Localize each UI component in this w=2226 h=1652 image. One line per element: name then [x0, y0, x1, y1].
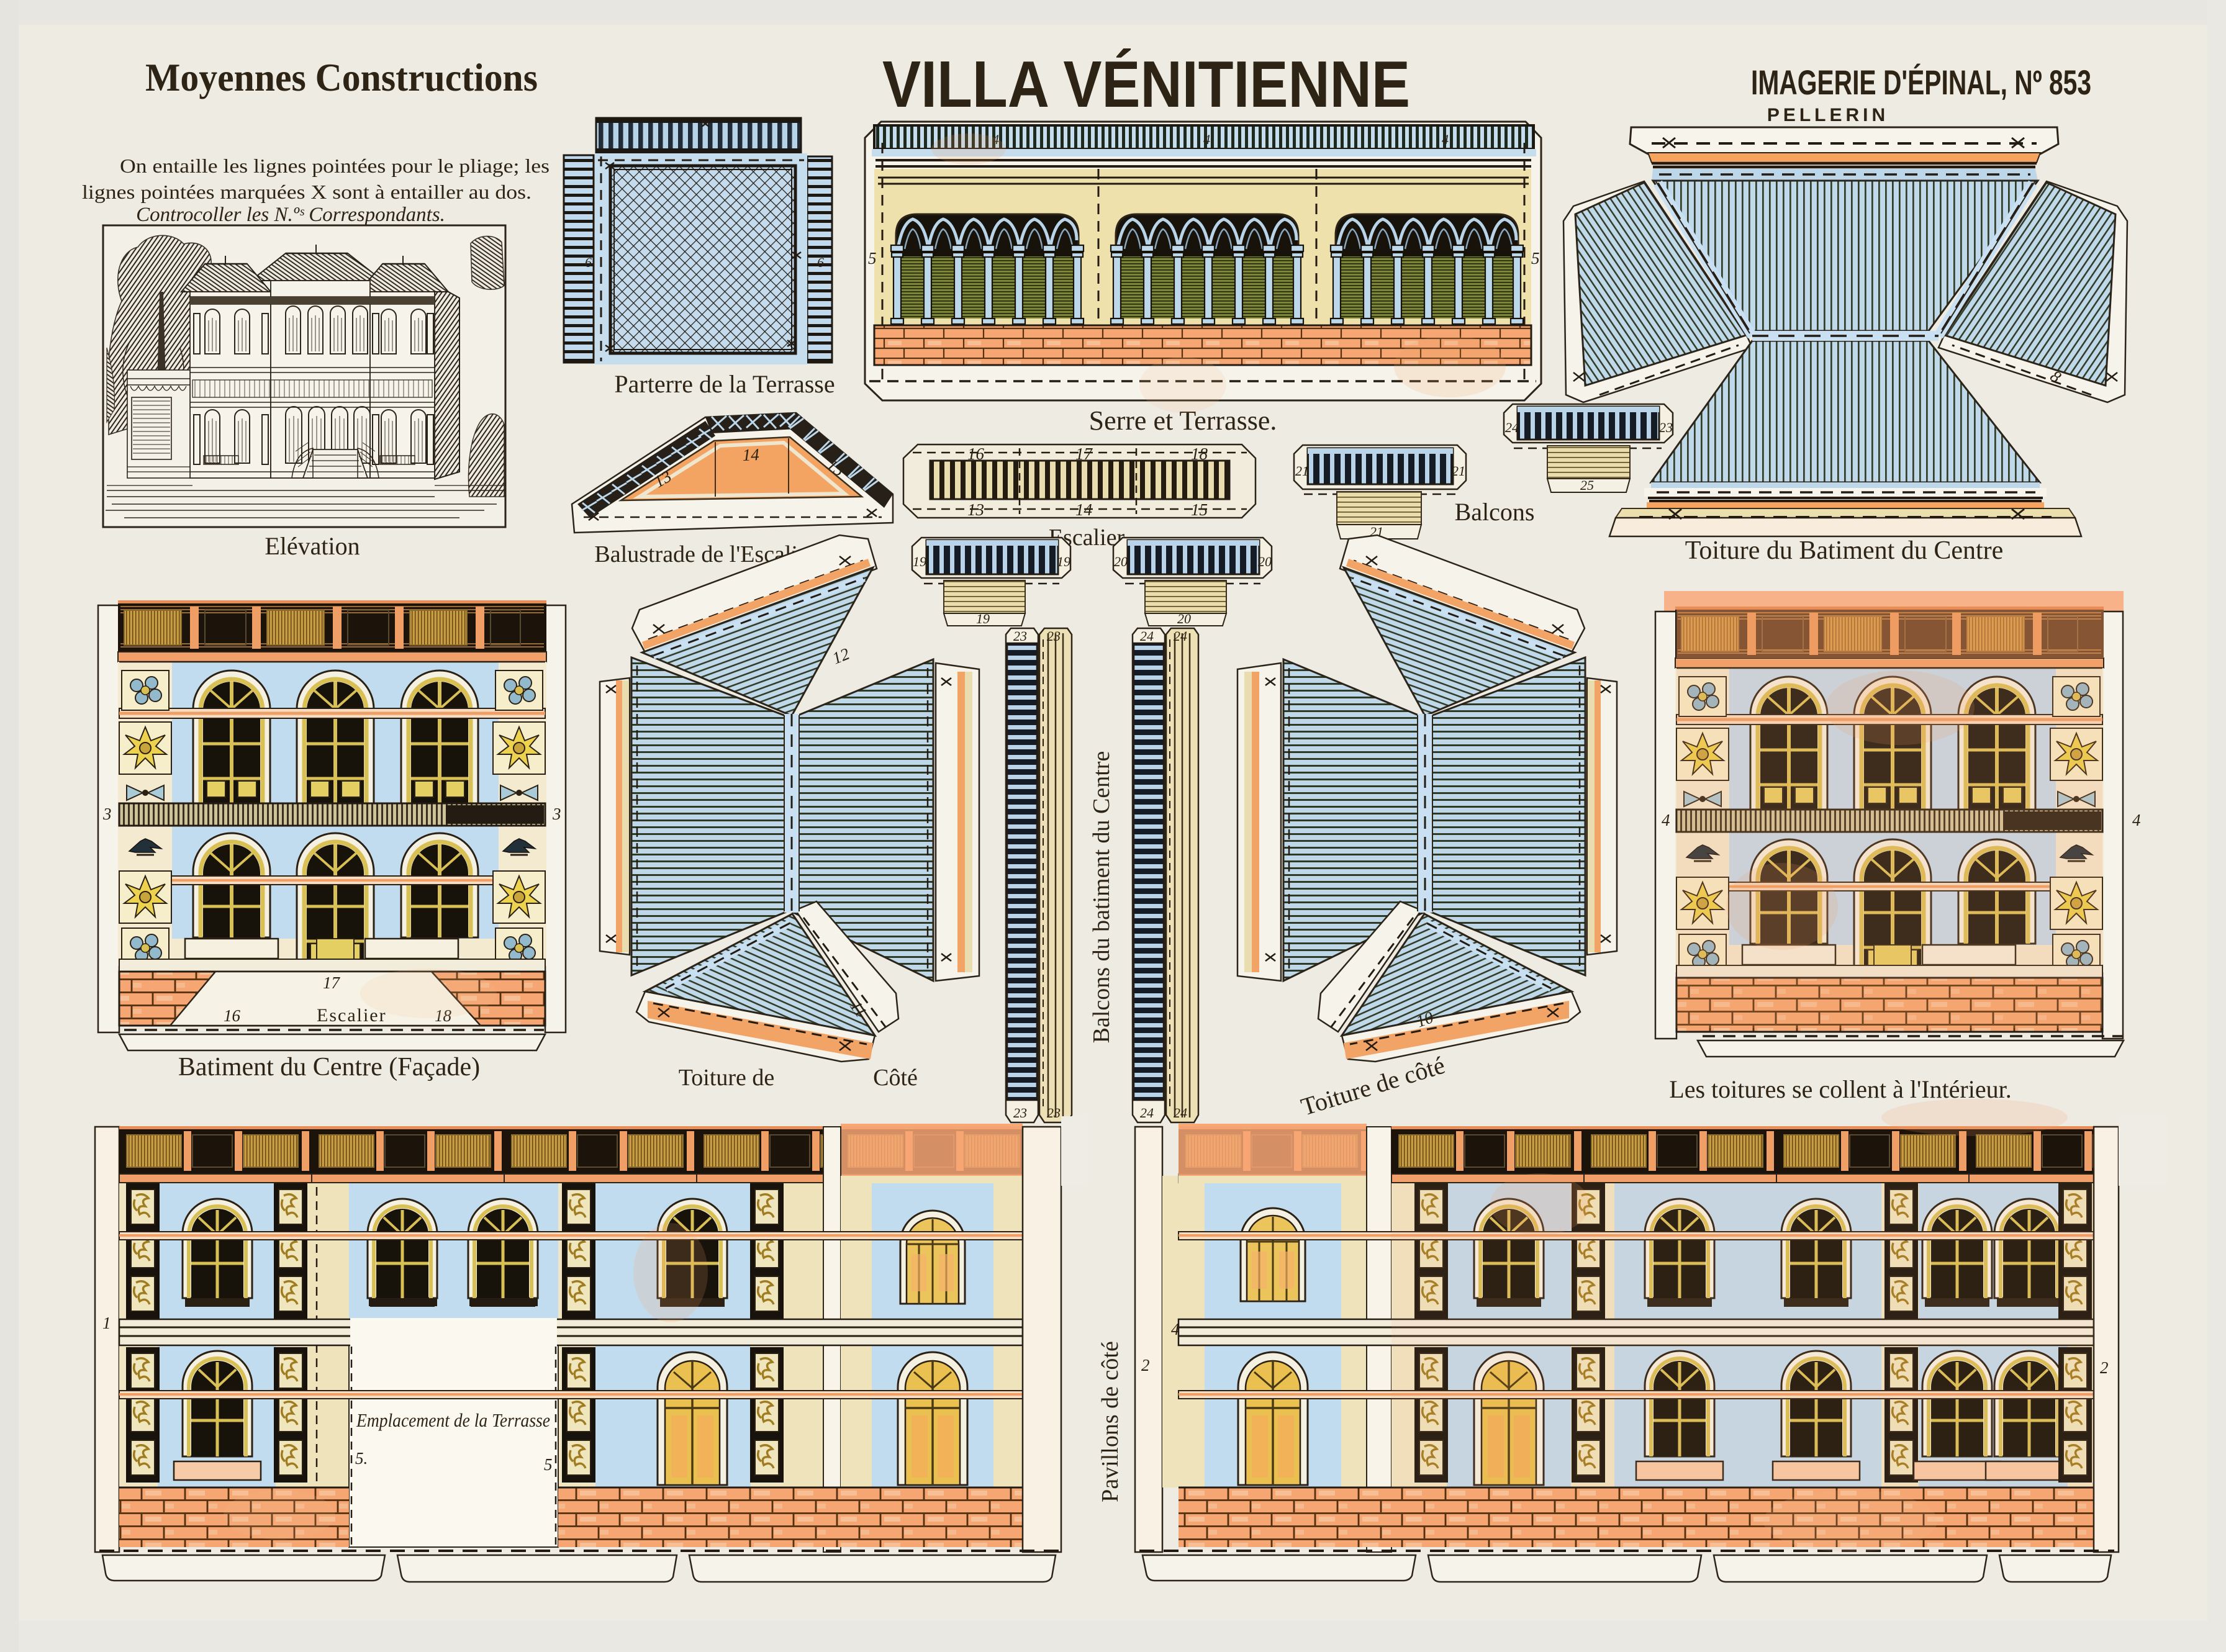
svg-text:6: 6: [585, 255, 592, 270]
svg-text:IMAGERIE D'ÉPINAL, Nº 853: IMAGERIE D'ÉPINAL, Nº 853: [1751, 63, 2091, 102]
svg-text:Parterre de la Terrasse: Parterre de la Terrasse: [614, 370, 835, 398]
svg-text:Toiture du Batiment du Centre: Toiture du Batiment du Centre: [1685, 536, 2004, 565]
svg-text:15: 15: [1191, 500, 1208, 519]
svg-text:20: 20: [1258, 554, 1272, 569]
svg-text:24: 24: [1140, 1105, 1154, 1121]
svg-text:14: 14: [742, 445, 759, 464]
svg-text:PELLERIN: PELLERIN: [1767, 105, 1889, 125]
svg-text:23: 23: [1013, 628, 1027, 644]
svg-text:24: 24: [1174, 628, 1187, 644]
svg-text:24: 24: [1174, 1105, 1187, 1121]
svg-text:Elévation: Elévation: [265, 532, 360, 560]
svg-text:14: 14: [1075, 500, 1092, 519]
svg-text:Emplacement de la Terrasse: Emplacement de la Terrasse: [356, 1409, 550, 1431]
svg-text:2: 2: [2100, 1358, 2109, 1377]
svg-text:21: 21: [1452, 463, 1465, 479]
svg-text:4: 4: [2132, 811, 2141, 829]
svg-text:3: 3: [552, 805, 561, 823]
svg-text:Pavillons de côté: Pavillons de côté: [1097, 1341, 1123, 1502]
svg-text:23: 23: [1013, 1105, 1027, 1121]
svg-text:5: 5: [544, 1455, 553, 1474]
svg-text:4: 4: [1203, 132, 1210, 147]
svg-text:13: 13: [967, 500, 984, 519]
svg-text:4: 4: [1442, 132, 1449, 147]
svg-text:4: 4: [1662, 811, 1670, 829]
svg-text:Les toitures se collent à l'In: Les toitures se collent à l'Intérieur.: [1669, 1075, 2011, 1103]
svg-text:1: 1: [102, 1314, 111, 1332]
svg-text:5.: 5.: [355, 1449, 368, 1468]
svg-text:23: 23: [1659, 420, 1673, 435]
svg-text:24: 24: [1140, 628, 1154, 644]
svg-text:Balcons: Balcons: [1455, 498, 1535, 526]
svg-text:Balcons du batiment du Centre: Balcons du batiment du Centre: [1088, 751, 1115, 1044]
svg-text:17: 17: [323, 973, 341, 992]
svg-text:Moyennes Constructions: Moyennes Constructions: [145, 55, 538, 99]
svg-text:Toiture de: Toiture de: [679, 1065, 775, 1091]
svg-text:Côté: Côté: [873, 1065, 918, 1091]
svg-text:19: 19: [976, 611, 990, 626]
svg-text:6: 6: [817, 255, 824, 270]
svg-text:24: 24: [1505, 420, 1519, 435]
svg-text:5: 5: [868, 249, 877, 268]
svg-text:Batiment du Centre (Façade): Batiment du Centre (Façade): [178, 1053, 480, 1081]
svg-text:19: 19: [1057, 554, 1070, 569]
svg-text:19: 19: [913, 554, 926, 569]
svg-text:23: 23: [1047, 1105, 1061, 1121]
svg-text:23: 23: [1047, 628, 1061, 644]
svg-text:16: 16: [967, 445, 985, 463]
svg-text:5: 5: [1531, 249, 1540, 268]
svg-text:25: 25: [1580, 477, 1594, 493]
svg-text:21: 21: [1295, 463, 1309, 479]
svg-text:2: 2: [1141, 1356, 1150, 1374]
svg-text:3: 3: [102, 805, 112, 823]
svg-text:17: 17: [1075, 445, 1093, 463]
svg-text:lignes pointées marquées X son: lignes pointées marquées X sont à entail…: [82, 181, 532, 203]
svg-text:20: 20: [1177, 611, 1191, 626]
svg-text:On entaille les lignes pointée: On entaille les lignes pointées pour le …: [120, 155, 550, 177]
svg-text:16: 16: [224, 1006, 241, 1025]
svg-text:18: 18: [1191, 445, 1208, 463]
svg-text:VILLA VÉNITIENNE: VILLA VÉNITIENNE: [882, 48, 1410, 121]
svg-text:Controcoller les N.ºˢ Correspo: Controcoller les N.ºˢ Correspondants.: [136, 204, 445, 226]
svg-text:20: 20: [1114, 554, 1128, 569]
